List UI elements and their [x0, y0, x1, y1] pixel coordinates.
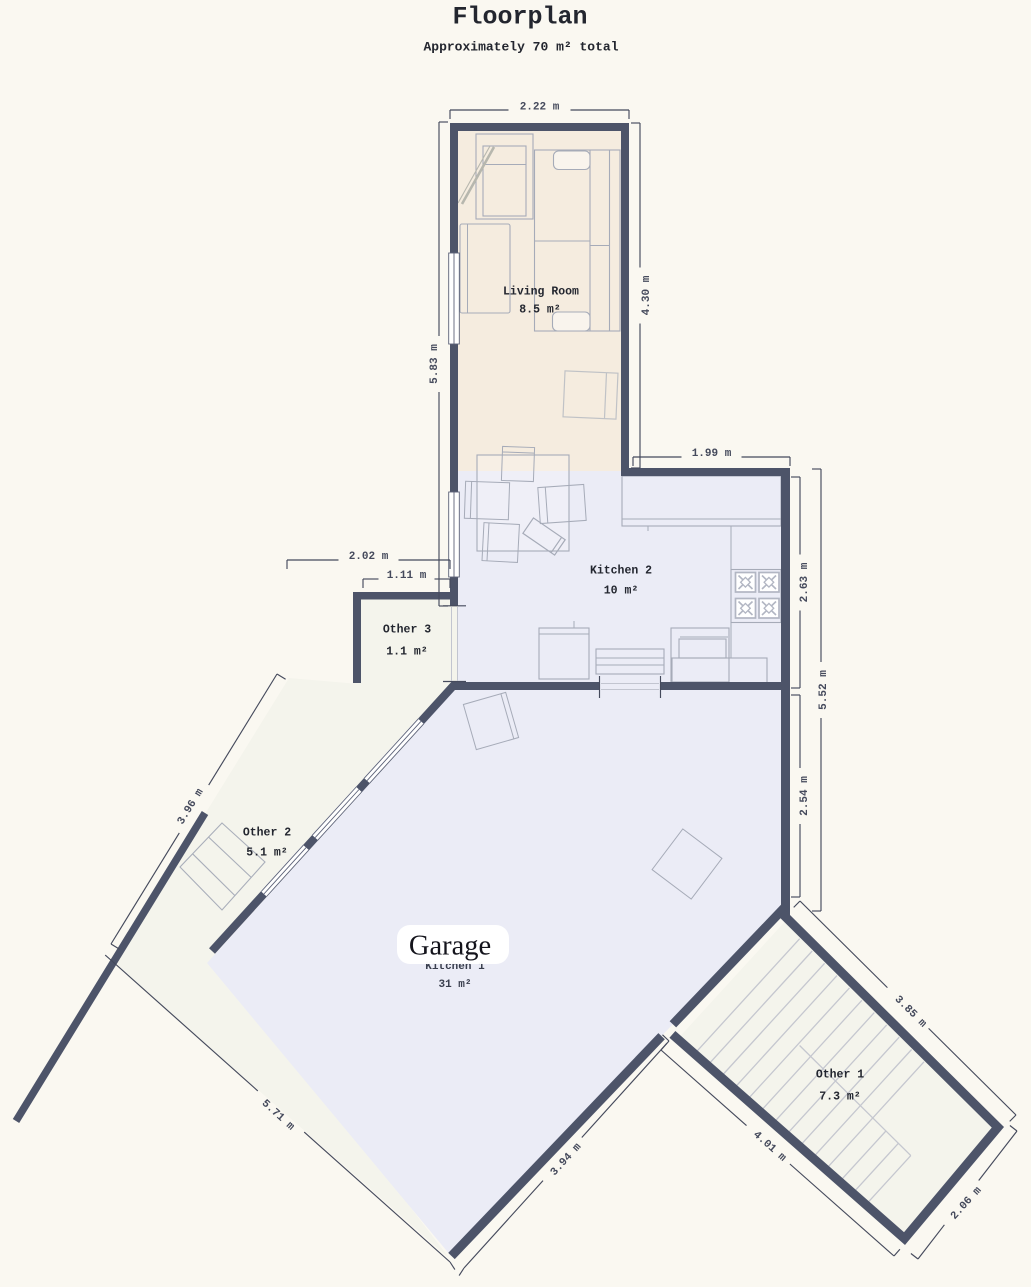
svg-text:10 m²: 10 m²	[604, 585, 639, 598]
svg-text:Floorplan: Floorplan	[452, 3, 587, 32]
svg-text:2.54 m: 2.54 m	[799, 776, 811, 816]
svg-text:1.11 m: 1.11 m	[387, 570, 427, 582]
svg-text:4.30 m: 4.30 m	[641, 275, 653, 315]
svg-text:Approximately 70 m² total: Approximately 70 m² total	[423, 40, 618, 55]
svg-text:5.1 m²: 5.1 m²	[246, 847, 287, 860]
svg-text:8.5 m²: 8.5 m²	[519, 304, 560, 317]
svg-text:2.63 m: 2.63 m	[799, 562, 811, 602]
svg-text:5.83 m: 5.83 m	[429, 344, 441, 384]
svg-text:Other 3: Other 3	[383, 624, 431, 637]
svg-text:Garage: Garage	[409, 931, 491, 962]
svg-text:5.52 m: 5.52 m	[818, 670, 830, 710]
svg-text:1.1 m²: 1.1 m²	[386, 646, 427, 659]
svg-text:31 m²: 31 m²	[438, 979, 471, 991]
svg-text:Living Room: Living Room	[503, 286, 579, 299]
svg-text:Other 1: Other 1	[816, 1069, 864, 1082]
svg-text:1.99 m: 1.99 m	[692, 448, 732, 460]
svg-text:2.22 m: 2.22 m	[520, 102, 560, 114]
svg-text:7.3 m²: 7.3 m²	[819, 1091, 860, 1104]
svg-text:2.02 m: 2.02 m	[349, 551, 389, 563]
svg-text:Kitchen 2: Kitchen 2	[590, 565, 652, 578]
svg-text:Other 2: Other 2	[243, 827, 291, 840]
